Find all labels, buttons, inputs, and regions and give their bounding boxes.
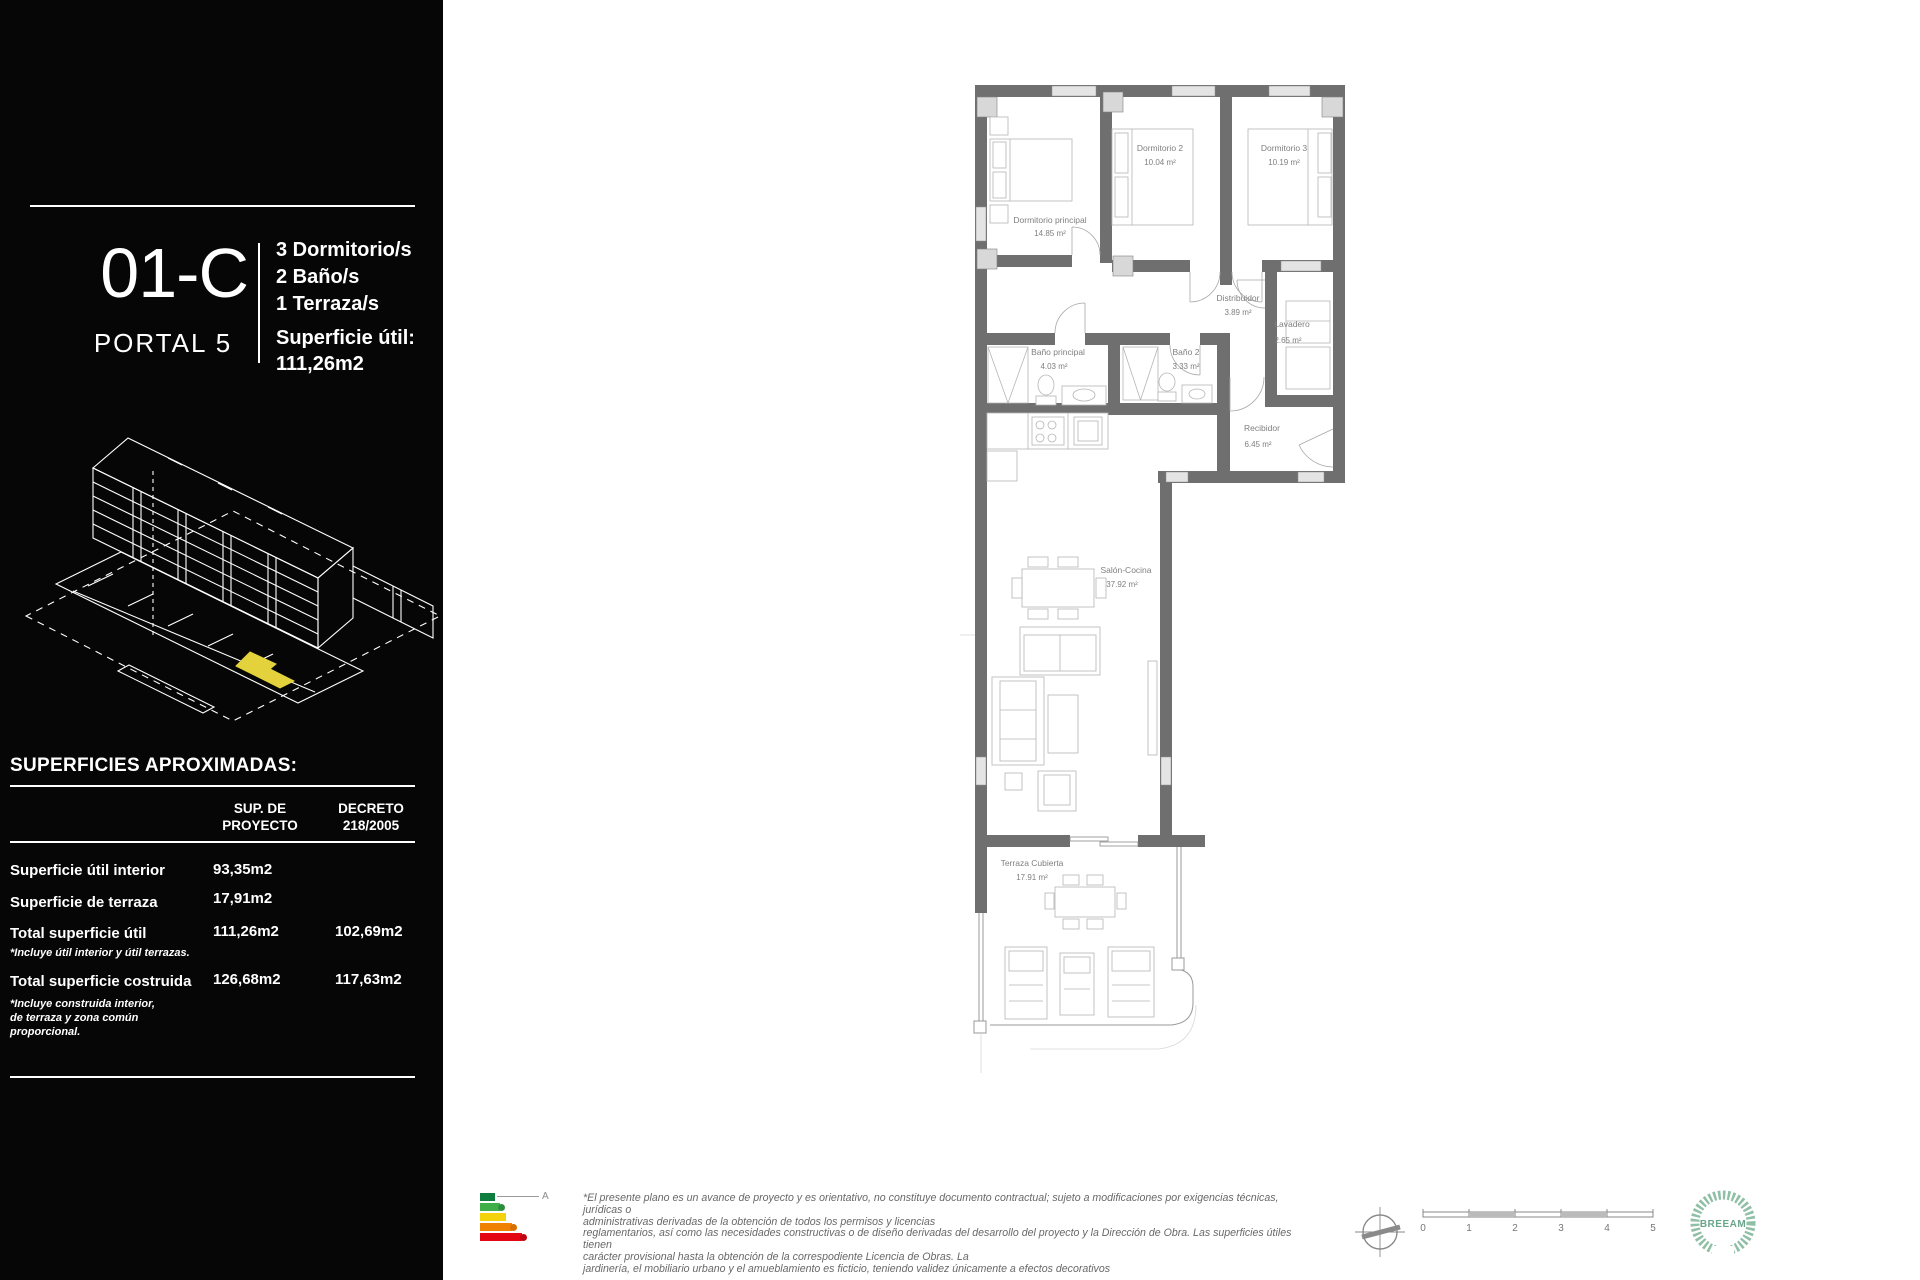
svg-text:37.92 m²: 37.92 m² [1106, 580, 1138, 589]
room-label-bano-2: Baño 2 [1173, 347, 1200, 357]
table-row-label: Total superficie útil [10, 925, 146, 942]
room-label-bano-principal: Baño principal [1031, 347, 1085, 357]
terrace-table [1055, 887, 1115, 917]
room-label-recibidor: Recibidor [1244, 423, 1280, 433]
table-row-label: Superficie de terraza [10, 894, 158, 911]
table-row-value: 102,69m2 [335, 923, 403, 940]
svg-text:1: 1 [1466, 1223, 1472, 1234]
floor-plan: Dormitorio principal 14.85 m² Dormitorio… [960, 55, 1360, 1080]
room-label-terraza: Terraza Cubierta [1001, 858, 1064, 868]
toilet [1038, 375, 1054, 395]
useful-area: Superficie útil: 111,26m2 [276, 325, 415, 377]
feature-terraces: 1 Terraza/s [276, 291, 412, 318]
side-table [1005, 773, 1022, 790]
table-row-value: 126,68m2 [213, 971, 281, 988]
shower-2 [1123, 347, 1158, 400]
svg-text:17.91 m²: 17.91 m² [1016, 873, 1048, 882]
column-header-proyecto: SUP. DE PROYECTO [210, 800, 310, 834]
svg-text:5: 5 [1650, 1223, 1656, 1234]
table-row-value: 111,26m2 [213, 923, 279, 940]
room-label-dormitorio-3: Dormitorio 3 [1261, 143, 1308, 153]
column-header-decreto: DECRETO 218/2005 [325, 800, 417, 834]
building-isometric-illustration [18, 376, 442, 748]
dryer [1286, 347, 1330, 389]
table-footnote-util: *Incluye útil interior y útil terrazas. [10, 946, 190, 960]
svg-text:4.03 m²: 4.03 m² [1040, 362, 1067, 371]
svg-text:3.89 m²: 3.89 m² [1224, 308, 1251, 317]
svg-text:6.45 m²: 6.45 m² [1244, 440, 1271, 449]
svg-text:2: 2 [1512, 1223, 1518, 1234]
svg-text:10.19 m²: 10.19 m² [1268, 158, 1300, 167]
fridge [987, 451, 1017, 481]
table-row-value: 17,91m2 [213, 890, 272, 907]
room-label-salon-cocina: Salón-Cocina [1100, 565, 1151, 575]
svg-text:14.85 m²: 14.85 m² [1034, 229, 1066, 238]
energy-rating-icon: A [480, 1191, 600, 1251]
panel-top-divider [30, 205, 415, 207]
tv-unit [1148, 661, 1157, 755]
useful-area-label: Superficie útil: [276, 325, 415, 351]
room-label-distribuidor: Distribuidor [1217, 293, 1260, 303]
table-rule-header [10, 841, 415, 843]
table-footnote-costruida: *Incluye construida interior, de terraza… [10, 997, 155, 1039]
unit-features: 3 Dormitorio/s 2 Baño/s 1 Terraza/s [276, 237, 412, 318]
table-row-label: Superficie útil interior [10, 862, 165, 879]
energy-grade-letter: A [542, 1191, 549, 1202]
vertical-divider [258, 243, 260, 363]
svg-text:3.33 m²: 3.33 m² [1172, 362, 1199, 371]
info-panel: 01-C PORTAL 5 3 Dormitorio/s 2 Baño/s 1 … [0, 0, 443, 1280]
breeam-logo: BREEAM [1685, 1185, 1761, 1261]
svg-text:0: 0 [1420, 1223, 1426, 1234]
table-rule-top [10, 785, 415, 787]
coffee-table [1048, 695, 1078, 753]
nightstand [990, 205, 1008, 223]
compass-icon [1348, 1200, 1412, 1264]
svg-text:2.65 m²: 2.65 m² [1274, 336, 1301, 345]
useful-area-value: 111,26m2 [276, 351, 415, 377]
feature-bedrooms: 3 Dormitorio/s [276, 237, 412, 264]
scale-bar: 0 1 2 3 4 5 [1418, 1198, 1668, 1248]
room-label-lavadero: Lavadero [1274, 319, 1310, 329]
feature-bathrooms: 2 Baño/s [276, 264, 412, 291]
dining-table [1022, 569, 1094, 607]
areas-table-title: SUPERFICIES APROXIMADAS: [10, 755, 297, 777]
table-rule-bottom [10, 1076, 415, 1078]
svg-text:10.04 m²: 10.04 m² [1144, 158, 1176, 167]
sliding-door [1070, 837, 1138, 846]
table-row-value: 93,35m2 [213, 861, 272, 878]
breeam-text: BREEAM [1700, 1219, 1746, 1230]
plan-furniture [987, 117, 1332, 1019]
room-label-dormitorio-principal: Dormitorio principal [1013, 215, 1086, 225]
table-row-label: Total superficie costruida [10, 973, 191, 990]
shower-principal [988, 347, 1028, 403]
nightstand [990, 117, 1008, 135]
toilet [1159, 373, 1175, 391]
room-label-dormitorio-2: Dormitorio 2 [1137, 143, 1184, 153]
table-row-value: 117,63m2 [335, 971, 402, 988]
legal-disclaimer: *El presente plano es un avance de proye… [583, 1193, 1295, 1276]
unit-code: 01-C [88, 236, 248, 310]
portal-label: PORTAL 5 [78, 328, 248, 359]
svg-text:4: 4 [1604, 1223, 1610, 1234]
svg-text:3: 3 [1558, 1223, 1564, 1234]
